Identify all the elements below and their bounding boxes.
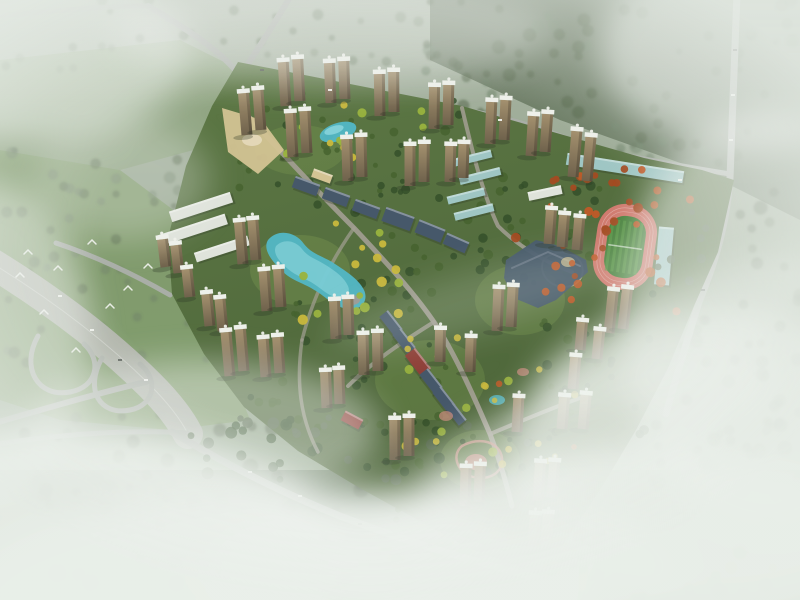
tower-white-roof xyxy=(257,266,270,271)
tower-white-roof xyxy=(527,111,540,116)
scene-layers xyxy=(0,0,800,600)
tower-white-roof xyxy=(485,97,498,102)
tower-white-roof xyxy=(403,414,416,419)
tower-white-roof xyxy=(319,367,332,372)
tower-white-roof xyxy=(499,95,512,100)
tower-white-roof xyxy=(541,109,554,114)
tower-white-roof xyxy=(457,139,470,144)
tower-white-roof xyxy=(545,205,558,210)
tower-white-roof xyxy=(512,393,525,398)
tower-white-roof xyxy=(284,108,297,113)
tower-white-roof xyxy=(340,134,353,139)
tower-white-roof xyxy=(444,141,457,146)
garden-plaza-pink xyxy=(439,411,453,421)
tower-white-roof xyxy=(328,296,341,301)
garden-plaza-pink xyxy=(517,368,529,376)
tower-white-roof xyxy=(428,82,441,87)
tower-white-roof xyxy=(298,106,311,111)
vehicle xyxy=(498,119,502,121)
scene-canvas xyxy=(0,0,800,600)
vehicle xyxy=(328,89,332,91)
vehicle xyxy=(90,329,94,331)
tower-white-roof xyxy=(442,80,455,85)
tower-white-roof xyxy=(418,139,431,144)
tower-white-roof xyxy=(332,365,345,370)
tower-white-roof xyxy=(388,415,401,420)
tower-white-roof xyxy=(272,264,285,269)
tower-white-roof xyxy=(354,132,367,137)
tower-white-roof xyxy=(256,334,269,339)
vehicle xyxy=(118,359,122,361)
aerial-masterplan-rendering xyxy=(0,0,800,600)
tower-white-roof xyxy=(404,142,417,147)
tower-white-roof xyxy=(271,332,284,337)
tower-white-roof xyxy=(341,294,354,299)
